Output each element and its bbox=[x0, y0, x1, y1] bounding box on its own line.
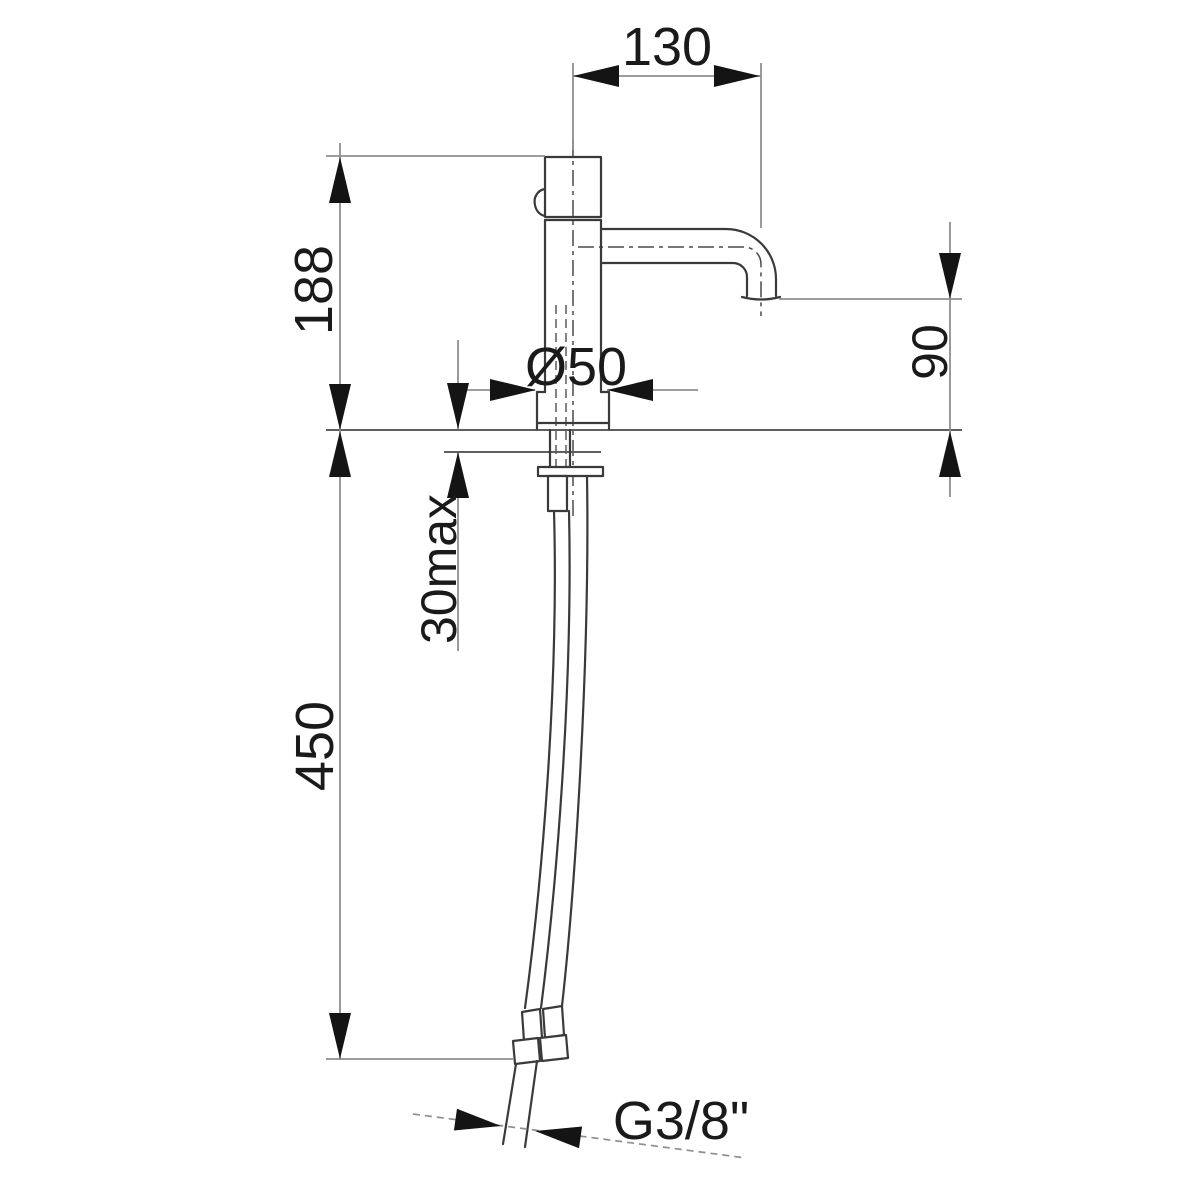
under-deck-assembly bbox=[503, 430, 603, 1147]
hose-length-label: 450 bbox=[285, 701, 345, 791]
connection-thread-label: G3/8" bbox=[613, 1091, 749, 1151]
deck-thickness-label: 30max bbox=[411, 494, 467, 644]
dimension-spout-height: 90 bbox=[779, 222, 962, 497]
arrow-right bbox=[714, 65, 760, 87]
arrow-down bbox=[329, 1013, 351, 1059]
hose-collar-right bbox=[543, 1006, 564, 1038]
connector-nut-right bbox=[540, 1035, 568, 1061]
spout-reach-label: 130 bbox=[622, 17, 712, 77]
dimension-base-diameter: Ø50 bbox=[458, 337, 698, 401]
callout-connection-thread: G3/8" bbox=[413, 1091, 749, 1158]
arrow-left-in bbox=[533, 1120, 582, 1148]
dimension-deck-thickness: 30max bbox=[411, 340, 469, 651]
height-above-deck-label: 188 bbox=[284, 245, 344, 335]
arrow-up-outside bbox=[447, 452, 469, 498]
technical-drawing-canvas: 130 188 Ø50 90 30max 450 bbox=[0, 0, 1200, 1200]
spout-inner-edge bbox=[601, 263, 747, 296]
connector-nut-left bbox=[513, 1038, 540, 1064]
hose-right-edge bbox=[562, 476, 587, 1006]
arrow-left bbox=[573, 65, 619, 87]
deck-lines bbox=[326, 430, 962, 452]
base-diameter-label: Ø50 bbox=[525, 337, 627, 397]
spout-centerline bbox=[578, 247, 761, 316]
dimension-hose-length: 450 bbox=[285, 430, 513, 1060]
drawing-page: 130 188 Ø50 90 30max 450 bbox=[0, 0, 1200, 1200]
thread-stub-left-edge bbox=[503, 1064, 516, 1144]
spout-height-label: 90 bbox=[902, 324, 958, 380]
arrow-down-outside bbox=[447, 383, 469, 429]
arrow-down-outside bbox=[939, 253, 961, 299]
washer-flange bbox=[538, 467, 603, 476]
hose-collar-left bbox=[522, 1009, 542, 1041]
arrow-up-outside bbox=[939, 431, 961, 477]
mounting-nut bbox=[548, 476, 567, 511]
arrow-up bbox=[329, 157, 351, 203]
thread-stub-right-edge bbox=[525, 1061, 537, 1147]
handle-lever bbox=[535, 189, 545, 216]
arrow-up bbox=[329, 431, 351, 477]
arrow-right-in bbox=[454, 1109, 503, 1137]
arrow-down bbox=[329, 384, 351, 430]
